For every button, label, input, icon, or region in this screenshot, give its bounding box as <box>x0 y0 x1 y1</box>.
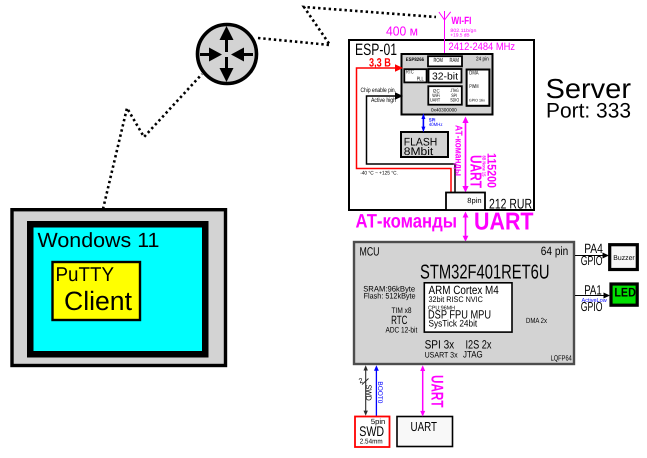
svg-text:PuTTY: PuTTY <box>56 264 115 286</box>
svg-text:Flash: 512kByte: Flash: 512kByte <box>364 291 416 300</box>
svg-text:JTAG: JTAG <box>463 349 483 360</box>
svg-text:8pin: 8pin <box>467 196 481 205</box>
svg-text:0x40300000: 0x40300000 <box>431 107 457 113</box>
svg-text:UART: UART <box>428 375 447 408</box>
svg-text:PWM: PWM <box>469 84 479 90</box>
svg-text:Port: 333: Port: 333 <box>546 100 631 123</box>
svg-text:UART: UART <box>474 209 534 236</box>
svg-text:STM32F401RET6U: STM32F401RET6U <box>420 262 550 284</box>
svg-text:115200: 115200 <box>485 153 499 188</box>
svg-text:GPIO 16x: GPIO 16x <box>469 98 485 102</box>
svg-text:400 м: 400 м <box>386 24 418 39</box>
svg-text:2412-2484 MHz: 2412-2484 MHz <box>449 41 516 53</box>
svg-text:SWD: SWD <box>364 385 373 401</box>
svg-text:Client: Client <box>64 286 133 316</box>
svg-text:SysTick 24bit: SysTick 24bit <box>429 318 478 329</box>
svg-text:DMA: DMA <box>469 70 479 76</box>
svg-text:BOOT0: BOOT0 <box>376 381 383 403</box>
svg-text:GPIO: GPIO <box>581 253 603 268</box>
svg-text:DMA 2x: DMA 2x <box>526 316 547 325</box>
svg-text:PA1: PA1 <box>584 282 602 297</box>
svg-text:24 pin: 24 pin <box>476 57 489 63</box>
svg-text:32bit RISC NVIC: 32bit RISC NVIC <box>429 295 484 304</box>
svg-text:LQFP64: LQFP64 <box>551 353 572 362</box>
svg-text:Chip enable pin.: Chip enable pin. <box>361 87 397 94</box>
svg-text:-40 °C ~ +125 °C.: -40 °C ~ +125 °C. <box>360 171 398 177</box>
svg-text:40MHz: 40MHz <box>429 122 443 128</box>
svg-text:GPIO: GPIO <box>581 299 603 314</box>
svg-text:ESP8266: ESP8266 <box>406 57 424 63</box>
svg-text:Active high: Active high <box>371 97 396 104</box>
svg-text:64 pin: 64 pin <box>541 244 569 258</box>
svg-text:UART: UART <box>411 419 438 434</box>
svg-text:SDIO: SDIO <box>450 98 459 104</box>
svg-text:Wondows 11: Wondows 11 <box>38 229 160 252</box>
svg-text:RTC: RTC <box>406 69 414 75</box>
svg-text:ROM: ROM <box>434 57 443 64</box>
svg-text:RAM: RAM <box>450 57 459 64</box>
svg-text:UART: UART <box>430 98 440 104</box>
svg-text:PLL: PLL <box>417 77 424 83</box>
svg-text:+19.5 dB: +19.5 dB <box>450 33 469 39</box>
svg-text:MCU: MCU <box>360 245 380 259</box>
svg-text:АТ-команды: АТ-команды <box>356 211 458 233</box>
svg-text:Buzzer: Buzzer <box>613 255 635 262</box>
svg-text:LED: LED <box>614 286 635 300</box>
svg-text:USART 3x: USART 3x <box>425 350 458 359</box>
svg-text:АТ-команды: АТ-команды <box>453 125 464 176</box>
svg-text:UART: UART <box>466 155 483 188</box>
svg-text:ADC 12-bit: ADC 12-bit <box>386 325 418 334</box>
svg-text:2.54mm: 2.54mm <box>360 439 383 446</box>
svg-text:8Mbit: 8Mbit <box>404 146 434 158</box>
svg-text:SWD: SWD <box>359 423 384 439</box>
svg-text:32-bit: 32-bit <box>432 72 458 83</box>
svg-text:WI-FI: WI-FI <box>451 15 471 27</box>
